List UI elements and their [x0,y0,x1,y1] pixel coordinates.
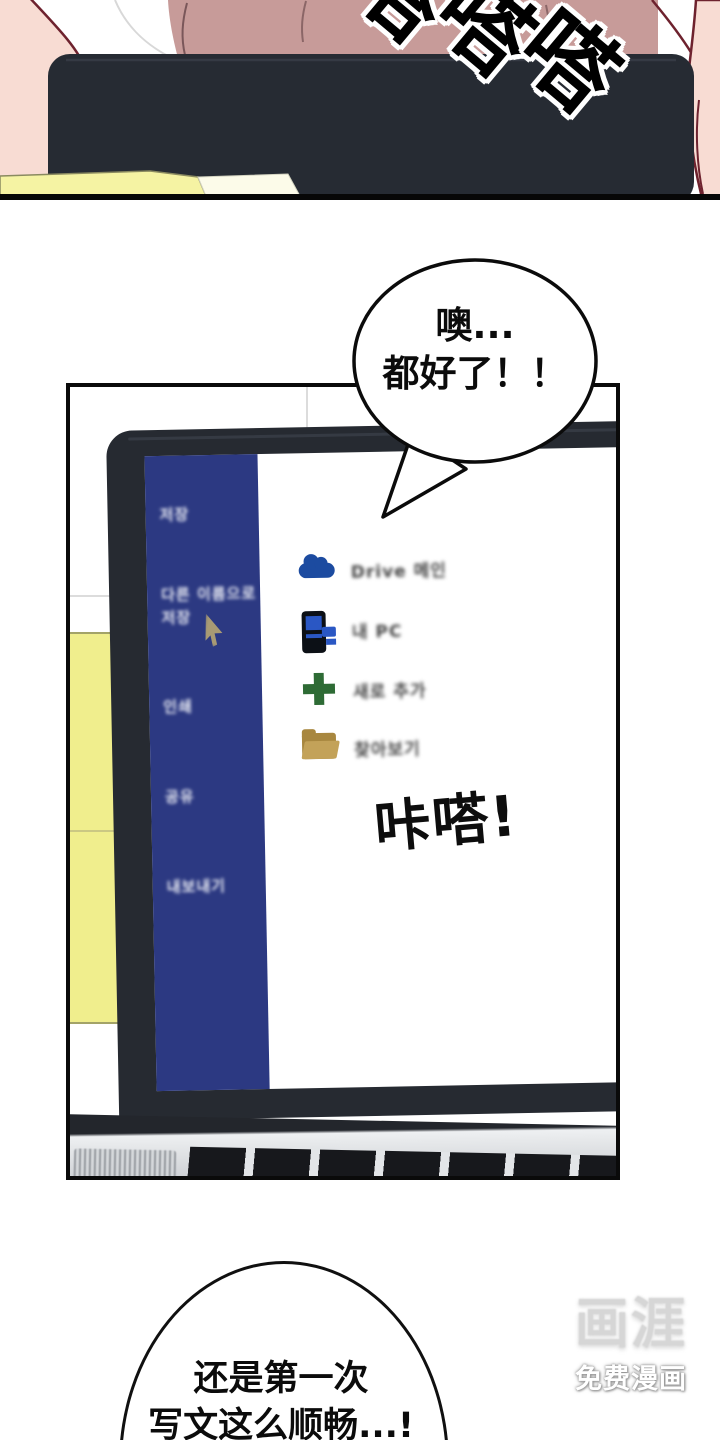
cream-sheet [198,174,300,196]
menu-item-label: 새로 추가 [353,676,427,702]
sidebar-item-print: 인쇄 [163,695,193,718]
sfx-click: 咔嗒! [371,771,521,864]
menu-item-label: 찾아보기 [354,735,421,761]
laptop-screen: 저장 다른 이름으로 저장 인쇄 공유 내보내기 Drive 메인 [144,445,620,1091]
speech-text-bottom: 还是第一次 写文这么顺畅...! [119,1356,443,1440]
watermark-logo: 画涯 [556,1294,706,1353]
menu-item-drive: Drive 메인 [294,551,295,591]
watermark: 画涯 免费漫画 [556,1294,706,1396]
folder-icon [302,733,338,760]
comic-page: 嗒 嗒 嗒 저장 다른 이름으로 저장 인쇄 공유 내보내기 [0,0,720,1440]
cloud-icon [299,563,335,579]
room-line [306,387,308,433]
menu-item-label: Drive 메인 [350,556,447,583]
speaker-grille-icon [73,1148,176,1180]
keyboard-keys [185,1147,620,1180]
menu-item-browse: 찾아보기 [298,729,299,769]
speech-line: 写文这么顺畅...! [119,1403,443,1440]
speech-line: 噢... [355,302,595,350]
menu-item-my-pc: 내 PC [295,611,296,651]
speech-text-top: 噢... 都好了！！ [355,302,595,398]
pc-icon [301,611,336,658]
plus-icon [303,673,336,706]
speech-line: 都好了！！ [355,350,595,398]
panel-divider [0,194,720,200]
sidebar-item-save: 저장 [159,503,189,526]
speech-line: 还是第一次 [119,1356,443,1403]
menu-item-add-new: 새로 추가 [297,671,298,711]
laptop-keyboard-deck [66,1114,620,1180]
sidebar-item-share: 공유 [165,785,195,808]
menu-item-label: 내 PC [352,617,403,643]
screen-sidebar: 저장 다른 이름으로 저장 인쇄 공유 내보내기 [144,454,269,1091]
watermark-tagline: 免费漫画 [556,1357,706,1396]
sidebar-item-export: 내보내기 [167,875,227,899]
yellow-paper [0,171,206,196]
